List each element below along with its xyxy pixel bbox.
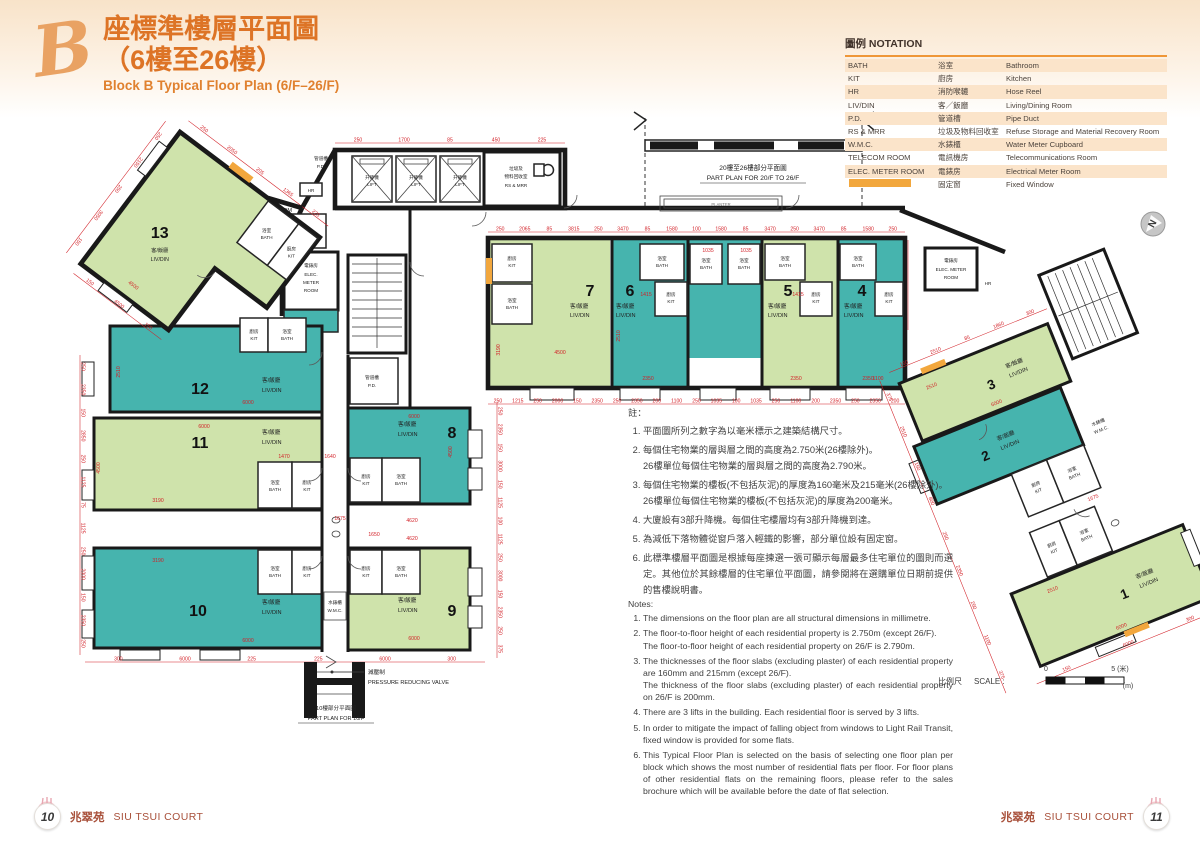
svg-text:LIFT: LIFT [411,182,421,187]
unit-10-number: 10 [189,603,207,620]
svg-text:250: 250 [533,399,542,405]
svg-text:4620: 4620 [406,518,417,524]
svg-text:225: 225 [247,657,256,663]
svg-text:150: 150 [79,593,85,602]
note-en-item: The thicknesses of the floor slabs (excl… [643,655,953,704]
note-en-item: This Typical Floor Plan is selected on t… [643,749,953,798]
svg-text:升降機: 升降機 [453,174,467,181]
part-plan-10f: 減壓制 PRESSURE REDUCING VALVE 10樓部分平面圖 PAR… [298,656,449,723]
svg-text:LIV/DIN: LIV/DIN [616,313,636,319]
svg-text:100: 100 [496,517,502,526]
page-title-zh-2: （6樓至26樓） [103,45,339,76]
svg-text:2350: 2350 [790,376,801,382]
svg-text:150: 150 [496,443,502,452]
svg-text:1100: 1100 [873,376,884,382]
notation-row: LIV/DIN客／飯廳Living/Dining Room [845,99,1167,112]
unit-5-number: 5 [784,283,793,300]
svg-text:150: 150 [496,480,502,489]
svg-text:P.D.: P.D. [368,383,376,388]
svg-text:250: 250 [790,227,799,233]
svg-text:300: 300 [447,657,456,663]
estate-name-zh: 兆翠苑 [1001,809,1036,825]
svg-text:物料回收室: 物料回收室 [505,173,528,180]
note-zh-item: 此標準樓層平面圖是根據每座揀選一張可顯示每層最多住宅單位的圖則而選定。其他位於其… [643,551,953,599]
svg-text:1650: 1650 [368,532,379,538]
svg-text:廚房: 廚房 [666,291,676,298]
svg-text:2510: 2510 [116,366,122,377]
brochure-page: B 座標準樓層平面圖 （6樓至26樓） Block B Typical Floo… [0,0,1200,848]
svg-text:1125: 1125 [496,534,502,545]
svg-text:ROOM: ROOM [304,288,318,293]
svg-text:2350: 2350 [631,399,642,405]
svg-text:100: 100 [692,227,701,233]
svg-text:LIV/DIN: LIV/DIN [570,313,590,319]
svg-text:0: 0 [1044,666,1048,673]
unit-6-number: 6 [626,283,635,300]
unit-11-number: 11 [192,435,209,452]
notation-legend: 圖例 NOTATION BATH浴室Bathroom KIT廚房Kitchen … [845,36,1167,191]
svg-text:3190: 3190 [496,344,502,355]
notes-chinese: 註： 平面圖所列之數字為以毫米標示之建築結構尺寸。 每個住宅物業的層與層之間的高… [628,406,953,602]
staircase-main [348,255,406,353]
svg-text:客/飯廳: 客/飯廳 [844,302,863,310]
units-band: 廚房KIT 浴室BATH 浴室BATH 廚房KIT 浴室BATH 浴室BATH … [486,227,908,405]
lift-2: 升降機 LIFT [396,156,436,202]
notation-row: TELECOM ROOM電訊機房Telecommunications Room [845,151,1167,164]
fixed-window-mark [486,258,492,284]
svg-text:BATH: BATH [700,265,712,270]
svg-text:浴室: 浴室 [739,257,749,264]
svg-text:250: 250 [79,455,85,464]
svg-text:客/飯廳: 客/飯廳 [262,598,281,606]
svg-text:客/飯廳: 客/飯廳 [570,302,589,310]
break-symbol [634,112,646,130]
svg-text:6000: 6000 [408,636,419,642]
svg-text:BATH: BATH [738,265,750,270]
svg-text:2350: 2350 [954,564,964,577]
svg-text:(m): (m) [1123,683,1134,690]
svg-text:2000: 2000 [552,399,563,405]
svg-text:2350: 2350 [592,399,603,405]
note-zh-item: 每個住宅物業的層與層之間的高度為2.750米(26樓除外)。 26樓單位每個住宅… [643,443,953,475]
part-plan-10f-label-en: PART PLAN FOR 10/F [308,716,365,722]
svg-text:升降機: 升降機 [409,174,423,181]
svg-text:4500: 4500 [554,350,565,356]
svg-text:BATH: BATH [395,573,407,578]
svg-text:1035: 1035 [711,399,722,405]
svg-text:BATH: BATH [506,305,518,310]
svg-text:浴室: 浴室 [853,255,863,262]
svg-text:75: 75 [79,502,85,508]
svg-text:METER: METER [303,280,320,285]
svg-text:PLANTER: PLANTER [711,202,730,207]
svg-text:LIV/DIN: LIV/DIN [398,608,418,614]
svg-text:300: 300 [1185,615,1195,624]
svg-text:浴室: 浴室 [282,328,292,335]
svg-text:客/飯廳: 客/飯廳 [616,302,635,310]
svg-text:廚房: 廚房 [287,245,297,252]
part-plan-2026: 20樓至26樓部分平面圖 PART PLAN FOR 20/F TO 26/F … [634,112,874,211]
unit-8-number: 8 [448,425,457,442]
svg-text:300: 300 [114,657,123,663]
svg-text:客/飯廳: 客/飯廳 [398,420,417,428]
svg-text:浴室: 浴室 [396,565,406,572]
svg-text:LIV/DIN: LIV/DIN [262,440,282,446]
svg-text:KIT: KIT [362,481,369,486]
estate-name-zh: 兆翠苑 [70,809,105,825]
svg-text:1470: 1470 [278,454,289,460]
svg-text:5 (米): 5 (米) [1111,664,1129,673]
footer-left: 10 兆翠苑 SIU TSUI COURT [34,803,203,830]
svg-text:2000: 2000 [79,569,85,580]
svg-text:ELEC.: ELEC. [304,272,317,277]
svg-text:225: 225 [538,138,547,144]
svg-text:LIV/DIN: LIV/DIN [151,257,169,263]
svg-text:BATH: BATH [269,573,281,578]
unit-12-number: 12 [191,381,209,398]
svg-text:浴室: 浴室 [780,255,790,262]
svg-text:2065: 2065 [519,227,530,233]
svg-text:3190: 3190 [152,558,163,564]
part-plan-10f-label-zh: 10樓部分平面圖 [316,704,356,712]
svg-text:85: 85 [963,334,971,342]
svg-text:250: 250 [79,547,85,556]
note-zh-item: 為減低下落物體從窗戶落入輕鐵的影響，部分單位設有固定窗。 [643,532,953,548]
svg-text:1100: 1100 [671,399,682,405]
svg-text:375: 375 [496,645,502,654]
svg-text:HR: HR [308,188,315,193]
svg-text:ROOM: ROOM [944,275,958,280]
svg-text:250: 250 [79,362,85,371]
note-zh-item: 大廈設有3部升降機。每個住宅樓層均有3部升降機到達。 [643,513,953,529]
svg-text:1035: 1035 [750,399,761,405]
lift-1: 升降機 LIFT [352,156,392,202]
wall-connector [900,210,1005,252]
svg-text:2350: 2350 [496,607,502,618]
pipe-duct-room [350,358,398,404]
svg-text:300: 300 [1025,308,1035,317]
svg-text:150: 150 [73,236,83,247]
svg-text:浴室: 浴室 [270,479,280,486]
svg-text:ELEC. METER: ELEC. METER [936,267,967,272]
svg-text:浴室: 浴室 [657,255,667,262]
lift-3: 升降機 LIFT [440,156,480,202]
svg-text:BATH: BATH [261,235,273,240]
svg-text:BATH: BATH [395,481,407,486]
notation-row: HR消防喉轆Hose Reel [845,85,1167,98]
svg-text:4500: 4500 [96,462,102,473]
svg-text:廚房: 廚房 [361,473,371,480]
svg-text:250: 250 [772,399,781,405]
svg-text:150: 150 [573,399,582,405]
notation-row: RS & MRR垃圾及物料回收室Refuse Storage and Mater… [845,125,1167,138]
svg-text:客/飯廳: 客/飯廳 [151,246,168,254]
svg-text:250: 250 [113,183,123,194]
svg-text:1675: 1675 [1087,493,1100,503]
page-number-right: 11 [1143,803,1170,830]
svg-text:浴室: 浴室 [262,227,272,234]
svg-text:1415: 1415 [640,292,651,298]
svg-text:LIV/DIN: LIV/DIN [844,313,864,319]
svg-text:廚房: 廚房 [507,255,517,262]
note-zh-item: 每個住宅物業的樓板(不包括灰泥)的厚度為160毫米及215毫米(26樓除外)。 … [643,478,953,510]
dim-chain: 250170085450225 [335,138,565,144]
svg-text:2350: 2350 [870,399,881,405]
svg-text:水錶櫃: 水錶櫃 [328,599,342,606]
svg-text:1640: 1640 [324,454,335,460]
svg-text:1415: 1415 [792,292,803,298]
notes-english: Notes: The dimensions on the floor plan … [628,598,953,801]
part-plan-2026-label-zh: 20樓至26樓部分平面圖 [719,163,787,172]
svg-text:1125: 1125 [79,523,85,534]
svg-text:1700: 1700 [398,138,409,144]
svg-text:225: 225 [314,657,323,663]
svg-text:P.D.: P.D. [317,164,325,169]
note-en-item: The dimensions on the floor plan are all… [643,612,953,624]
svg-text:6000: 6000 [408,414,419,420]
svg-text:1365: 1365 [281,187,294,199]
svg-text:6000: 6000 [198,424,209,430]
svg-text:1675: 1675 [334,516,345,522]
page-title-zh-1: 座標準樓層平面圖 [103,14,339,45]
unit-4-number: 4 [858,283,867,300]
svg-text:250: 250 [969,600,978,610]
svg-text:2350: 2350 [496,424,502,435]
svg-text:3470: 3470 [617,227,628,233]
svg-text:HR: HR [985,281,992,286]
footer-right: 兆翠苑 SIU TSUI COURT 11 [1001,803,1170,830]
svg-text:6000: 6000 [242,638,253,644]
notation-row: BATH浴室Bathroom [845,59,1167,72]
svg-text:1100: 1100 [982,634,992,647]
svg-text:LIV/DIN: LIV/DIN [262,388,282,394]
svg-text:LIV/DIN: LIV/DIN [398,432,418,438]
svg-text:150: 150 [1062,665,1072,674]
svg-text:2350: 2350 [79,384,85,395]
svg-text:廚房: 廚房 [361,565,371,572]
svg-text:2350: 2350 [830,399,841,405]
svg-text:3000: 3000 [496,570,502,581]
svg-text:RS & MRR: RS & MRR [505,183,528,188]
svg-text:管道槽: 管道槽 [365,374,379,381]
svg-text:BATH: BATH [269,487,281,492]
notation-header: 圖例 NOTATION [845,36,1167,57]
svg-text:KIT: KIT [667,299,674,304]
svg-text:1100: 1100 [790,399,801,405]
svg-text:3050: 3050 [92,209,104,222]
north-arrow-icon: N [1141,212,1165,236]
svg-text:浴室: 浴室 [396,473,406,480]
dim-chain: 2502350150300015011251001125250300015023… [496,402,502,658]
svg-text:電錶房: 電錶房 [944,257,958,264]
svg-text:廚房: 廚房 [884,291,894,298]
svg-text:250: 250 [153,131,163,142]
svg-text:250: 250 [496,407,502,416]
svg-text:3470: 3470 [764,227,775,233]
notes-en-header: Notes: [628,598,953,610]
svg-text:250: 250 [494,399,503,405]
svg-text:升降機: 升降機 [365,174,379,181]
svg-text:電錶房: 電錶房 [304,262,318,269]
unit-9-number: 9 [448,603,457,620]
estate-name-en: SIU TSUI COURT [114,811,204,823]
svg-text:1860: 1860 [992,321,1005,331]
svg-text:KIT: KIT [508,263,515,268]
note-en-item: The floor-to-floor height of each reside… [643,627,953,651]
notation-row-fixed-window: 固定窗 Fixed Window [845,178,1167,191]
svg-text:1580: 1580 [666,227,677,233]
notation-row: P.D.管道槽Pipe Duct [845,112,1167,125]
svg-text:KIT: KIT [250,336,257,341]
svg-text:150: 150 [79,408,85,417]
svg-text:LIFT: LIFT [367,182,377,187]
svg-text:客/飯廳: 客/飯廳 [768,302,787,310]
svg-text:LIV/DIN: LIV/DIN [262,610,282,616]
svg-text:BATH: BATH [779,263,791,268]
svg-text:1580: 1580 [863,227,874,233]
svg-text:100: 100 [732,399,741,405]
svg-text:1125: 1125 [79,476,85,487]
svg-text:1215: 1215 [512,399,523,405]
scale-bar: 比例尺 SCALE : 0 5 (米) (m) [938,664,1133,690]
svg-text:3190: 3190 [152,498,163,504]
svg-text:BATH: BATH [656,263,668,268]
notes-zh-header: 註： [628,406,953,422]
prv-label-en: PRESSURE REDUCING VALVE [368,680,449,686]
block-letter: B [29,10,99,96]
svg-text:1125: 1125 [496,497,502,508]
svg-text:KIT: KIT [303,573,310,578]
svg-text:3815: 3815 [568,227,579,233]
refuse-room: 垃圾及 物料回收室 RS & MRR [484,152,560,206]
svg-text:250: 250 [354,138,363,144]
svg-text:廚房: 廚房 [811,291,821,298]
svg-text:85: 85 [841,227,847,233]
svg-text:6000: 6000 [179,657,190,663]
svg-text:客/飯廳: 客/飯廳 [262,376,281,384]
svg-text:4620: 4620 [406,536,417,542]
svg-text:BATH: BATH [281,336,293,341]
svg-text:250: 250 [594,227,603,233]
svg-text:浴室: 浴室 [270,565,280,572]
pd-label: 管道槽 [314,155,328,162]
svg-text:廚房: 廚房 [302,479,312,486]
svg-text:1580: 1580 [715,227,726,233]
svg-text:W.M.C.: W.M.C. [327,608,342,613]
svg-text:250: 250 [79,639,85,648]
svg-text:85: 85 [645,227,651,233]
svg-text:1035: 1035 [740,248,751,254]
estate-name-en: SIU TSUI COURT [1044,811,1134,823]
svg-text:200: 200 [653,399,662,405]
svg-text:200: 200 [811,399,820,405]
svg-text:KIT: KIT [885,299,892,304]
svg-text:垃圾及: 垃圾及 [509,165,523,172]
svg-text:浴室: 浴室 [507,297,517,304]
svg-text:250: 250 [496,626,502,635]
svg-text:2350: 2350 [79,615,85,626]
svg-text:450: 450 [492,138,501,144]
fixed-window-swatch [848,179,912,188]
title-block: B 座標準樓層平面圖 （6樓至26樓） Block B Typical Floo… [34,14,339,93]
svg-text:KIT: KIT [303,487,310,492]
dim-chain: 2502065853815250347085158010015808534702… [488,227,905,233]
svg-text:6000: 6000 [379,657,390,663]
svg-text:250: 250 [496,553,502,562]
svg-text:LIFT: LIFT [455,182,465,187]
svg-text:BATH: BATH [852,263,864,268]
svg-text:150: 150 [496,590,502,599]
svg-text:1035: 1035 [702,248,713,254]
svg-text:250: 250 [613,399,622,405]
svg-text:3000: 3000 [496,460,502,471]
page-number-left: 10 [34,803,61,830]
middle-column-units: 廚房KIT 浴室BATH 8 客/飯廳LIV/DIN 廚房KIT 浴室BATH … [322,352,502,658]
svg-text:3470: 3470 [813,227,824,233]
svg-text:客/飯廳: 客/飯廳 [262,428,281,436]
svg-text:250: 250 [888,227,897,233]
svg-text:廚房: 廚房 [249,328,259,335]
svg-text:4500: 4500 [448,446,454,457]
svg-text:85: 85 [447,138,453,144]
svg-text:205: 205 [255,167,266,177]
svg-text:廚房: 廚房 [302,565,312,572]
svg-text:KIT: KIT [362,573,369,578]
note-zh-item: 平面圖所列之數字為以毫米標示之建築結構尺寸。 [643,424,953,440]
svg-text:客/飯廳: 客/飯廳 [398,596,417,604]
svg-text:250: 250 [199,124,210,134]
svg-text:250: 250 [692,399,701,405]
svg-text:浴室: 浴室 [701,257,711,264]
svg-text:6000: 6000 [242,400,253,406]
svg-text:LIV/DIN: LIV/DIN [768,313,788,319]
unit-13-number: 13 [151,225,169,242]
svg-text:KIT: KIT [812,299,819,304]
prv-label-zh: 減壓制 [368,668,385,676]
note-en-item: There are 3 lifts in the building. Each … [643,706,953,718]
svg-text:2510: 2510 [616,330,622,341]
svg-text:2850: 2850 [79,430,85,441]
notation-row: ELEC. METER ROOM電錶房Electrical Meter Room [845,165,1167,178]
svg-text:85: 85 [546,227,552,233]
svg-text:SCALE :: SCALE : [974,677,1005,686]
part-plan-2026-label-en: PART PLAN FOR 20/F TO 26/F [707,175,799,182]
svg-text:2050: 2050 [225,145,238,157]
svg-text:KIT: KIT [288,253,295,258]
svg-text:2510: 2510 [929,346,942,356]
unit-7-number: 7 [586,283,595,300]
page-title-en: Block B Typical Floor Plan (6/F–26/F) [103,78,339,93]
svg-text:150: 150 [84,278,95,288]
svg-text:2350: 2350 [642,376,653,382]
notation-row: W.M.C.水錶櫃Water Meter Cupboard [845,138,1167,151]
svg-text:85: 85 [743,227,749,233]
notation-row: KIT廚房Kitchen [845,72,1167,85]
svg-text:250: 250 [851,399,860,405]
note-en-item: In order to mitigate the impact of falli… [643,722,953,746]
svg-text:W.M.C.: W.M.C. [1093,425,1109,435]
svg-text:250: 250 [496,227,505,233]
